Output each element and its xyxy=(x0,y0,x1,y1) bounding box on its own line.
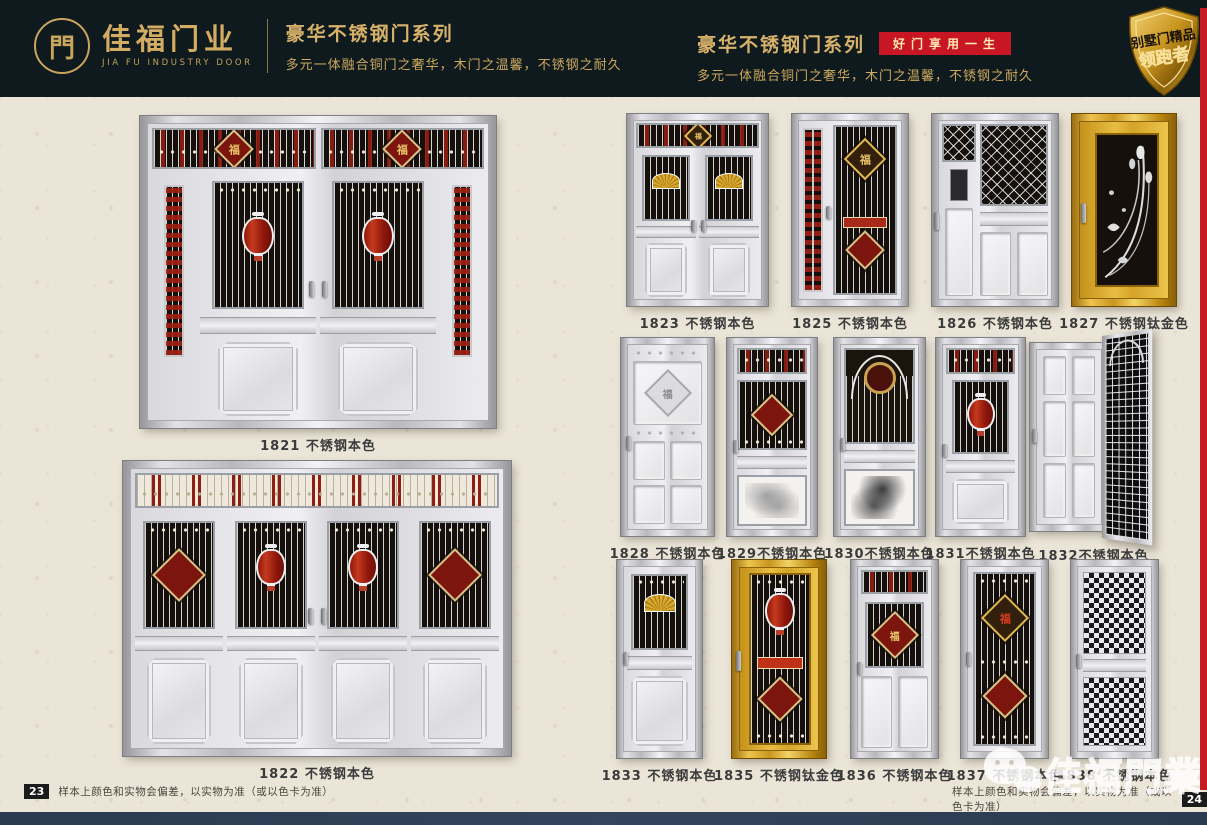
lattice-pattern xyxy=(1083,677,1146,746)
red-band xyxy=(757,657,803,669)
door-leaf xyxy=(411,513,499,744)
recessed-panel xyxy=(1072,463,1095,518)
door-leaf xyxy=(636,151,696,297)
door-1835-image xyxy=(732,560,826,758)
door-1825-image: 福 xyxy=(792,114,908,306)
transom-grille: 福 xyxy=(321,128,485,169)
door-handle xyxy=(626,436,631,450)
recessed-panel xyxy=(670,441,702,480)
leaf-grille-window: 福 xyxy=(833,125,897,295)
sidelite xyxy=(152,173,196,416)
leaf-grille-window xyxy=(212,181,304,309)
transom-grille xyxy=(946,348,1015,374)
door-label: 1825 不锈钢本色 xyxy=(792,313,908,332)
fu-glyph: 福 xyxy=(890,628,900,643)
door-handle xyxy=(321,608,326,624)
door-handle xyxy=(1081,203,1086,223)
ornament-dots xyxy=(423,527,487,533)
door-label: 1823 不锈钢本色 xyxy=(640,313,756,332)
door-leaves xyxy=(636,151,759,297)
door-card-1825: 福 1825 不锈钢本色 xyxy=(792,114,908,332)
emboss-diamond: 福 xyxy=(643,369,691,417)
header: 門 佳福门业 JIA FU INDUSTRY DOOR 豪华不锈钢门系列 多元一… xyxy=(0,0,1207,97)
leaf-grille-window xyxy=(631,574,688,650)
page-number: 23 xyxy=(24,784,49,799)
brand-logo-icon: 門 xyxy=(34,18,90,74)
door-body xyxy=(1077,566,1152,752)
emboss-panel xyxy=(708,243,750,297)
sidelite-grille xyxy=(812,128,823,292)
door-body xyxy=(942,344,1019,530)
mid-rail xyxy=(737,456,807,469)
door-body: 福 xyxy=(627,344,708,530)
leaf-grille-window: 福 xyxy=(865,602,924,668)
door-handle xyxy=(840,438,845,451)
ornament-dots xyxy=(977,659,1032,665)
door-handle xyxy=(733,440,738,453)
mid-rail xyxy=(320,317,436,334)
leaf-grille-window xyxy=(737,380,807,450)
door-handle xyxy=(691,220,696,232)
door-1830-image xyxy=(834,338,925,536)
door-leaf xyxy=(227,513,315,744)
emboss-panel xyxy=(952,479,1009,524)
mid-rail xyxy=(1083,659,1146,672)
door-leaves xyxy=(152,173,484,416)
door-leaf xyxy=(135,513,223,744)
recessed-panel xyxy=(633,441,665,480)
mid-rail xyxy=(980,212,1048,226)
series-subtitle-left: 多元一体融合铜门之奢华，木门之温馨，不锈钢之耐久 xyxy=(286,54,622,73)
door-label: 1826 不锈钢本色 xyxy=(937,313,1053,332)
lower-panels xyxy=(980,232,1048,296)
door-handle xyxy=(934,212,939,230)
emboss-panel xyxy=(239,658,303,744)
door-1821-body: 福 福 xyxy=(147,123,489,421)
recessed-panel: 福 xyxy=(633,361,702,425)
leaf-grille-window xyxy=(235,521,307,629)
lantern-icon xyxy=(256,549,286,585)
red-edge-strip xyxy=(1200,8,1207,790)
door-1833-image xyxy=(617,560,702,758)
ornament-dots xyxy=(753,579,807,585)
ornament-dots xyxy=(753,733,807,739)
door-body: 福 xyxy=(857,566,932,752)
recessed-panel xyxy=(1043,356,1066,395)
door-handle xyxy=(857,662,862,675)
gold-fan-icon xyxy=(652,173,680,189)
gold-fan-icon xyxy=(644,594,676,612)
leaf-grille-window xyxy=(332,181,424,309)
mid-rail xyxy=(411,636,499,651)
door-card-1830: 1830不锈钢本色 xyxy=(834,338,925,562)
door-body xyxy=(1036,349,1102,525)
emboss-panel xyxy=(423,658,487,744)
leaf-grille-window xyxy=(143,521,215,629)
door-1829-image xyxy=(727,338,817,536)
recessed-panel xyxy=(980,232,1011,296)
ornament-dots xyxy=(635,579,684,585)
gold-fan-icon xyxy=(715,173,743,189)
door-body xyxy=(623,566,696,752)
leaf-grille-window xyxy=(952,380,1009,454)
emboss-panel xyxy=(147,658,211,744)
sidelite xyxy=(440,173,484,416)
main-leaf xyxy=(980,124,1048,296)
door-body xyxy=(739,567,819,751)
narrow-leaf xyxy=(942,124,976,296)
door-card-1823: 福 xyxy=(627,114,768,332)
brand-name-cn: 佳福门业 xyxy=(102,24,253,54)
recessed-panel xyxy=(861,676,892,748)
door-handle xyxy=(966,652,971,666)
fu-glyph: 福 xyxy=(999,610,1010,626)
emboss-panel xyxy=(631,676,688,746)
wechat-icon xyxy=(982,744,1044,802)
etched-panel xyxy=(737,475,807,526)
main-leaf: 福 xyxy=(828,120,902,300)
fu-glyph: 福 xyxy=(860,151,871,167)
mid-rail xyxy=(227,636,315,651)
medallion-icon xyxy=(864,362,896,394)
door-1832-image xyxy=(1030,336,1157,538)
door-card-1821: 福 福 xyxy=(140,116,496,454)
mid-rail xyxy=(636,226,696,238)
door-1828-image: 福 xyxy=(621,338,714,536)
ornament-dots xyxy=(139,491,495,497)
door-leaf xyxy=(699,151,759,297)
intercom-panel xyxy=(950,169,968,201)
lantern-icon xyxy=(362,217,394,255)
door-body: 福 xyxy=(633,120,762,300)
emblem-shield-icon: 别墅门精品 领跑者 xyxy=(1124,5,1204,97)
door-card-1828: 福 1828 不锈钢本色 xyxy=(621,338,714,562)
lantern-icon xyxy=(242,217,274,255)
ornament-dots xyxy=(147,527,211,533)
series-title-left: 豪华不锈钢门系列 xyxy=(286,19,622,46)
door-1823-image: 福 xyxy=(627,114,768,306)
recessed-panel xyxy=(1043,463,1066,518)
door-body xyxy=(733,344,811,530)
leaf-grille-window xyxy=(327,521,399,629)
lotus-art xyxy=(851,476,908,519)
lantern-icon xyxy=(967,398,995,430)
lattice-grille xyxy=(980,124,1048,206)
mesh-grille xyxy=(1106,333,1148,540)
door-body: 福 xyxy=(967,566,1042,752)
door-card-1826: 1826 不锈钢本色 xyxy=(932,114,1058,332)
transom-grille xyxy=(861,570,928,594)
ornament-dots xyxy=(950,357,1011,363)
open-screen-leaf xyxy=(1102,329,1152,546)
door-1831-image xyxy=(936,338,1025,536)
firecracker-bars xyxy=(454,187,470,355)
peacock-window xyxy=(1095,133,1159,287)
door-handle xyxy=(1032,429,1037,443)
door-label: 1821 不锈钢本色 xyxy=(260,435,376,454)
door-handle xyxy=(736,651,741,671)
fu-glyph: 福 xyxy=(694,131,701,141)
full-grille-window xyxy=(749,573,811,745)
door-body xyxy=(1079,121,1169,299)
firecracker-bars xyxy=(805,130,812,290)
door-body xyxy=(938,120,1052,300)
ornament-dots xyxy=(741,439,803,445)
lantern-icon xyxy=(765,593,795,629)
watermark-text: 佳福門業 xyxy=(1042,746,1206,801)
door-handle xyxy=(308,608,313,624)
catalog-spread: 門 佳福门业 JIA FU INDUSTRY DOOR 豪华不锈钢门系列 多元一… xyxy=(0,0,1207,825)
transom-grille: 福 xyxy=(636,123,759,148)
brand-text: 佳福门业 JIA FU INDUSTRY DOOR xyxy=(102,24,253,67)
slogan-badge: 好门享用一生 xyxy=(879,32,1011,55)
door-1822-image xyxy=(123,461,511,756)
door-handle xyxy=(826,206,831,219)
peacock-art xyxy=(1097,135,1157,285)
recessed-panel xyxy=(1072,356,1095,395)
ornament-dots xyxy=(741,357,803,363)
etched-art xyxy=(745,483,799,518)
brand-name-en: JIA FU INDUSTRY DOOR xyxy=(102,58,253,68)
lower-panels xyxy=(861,676,928,748)
firecracker-bars xyxy=(814,130,821,290)
ornament-dots xyxy=(331,527,395,533)
transom xyxy=(135,473,499,508)
door-handle xyxy=(623,652,628,665)
narrow-leaf xyxy=(798,120,828,300)
header-brand-block: 門 佳福门业 JIA FU INDUSTRY DOOR 豪华不锈钢门系列 多元一… xyxy=(34,18,622,74)
door-card-1822: 1822 不锈钢本色 xyxy=(123,461,511,782)
door-card-1836: 福 1836 不锈钢本色 xyxy=(851,560,938,784)
door-label: 1822 不锈钢本色 xyxy=(259,763,375,782)
door-leaf xyxy=(200,173,316,416)
color-disclaimer: 样本上颜色和实物会偏差，以实物为准（或以色卡为准） xyxy=(58,784,333,799)
recessed-panel xyxy=(1017,232,1048,296)
ornament-dots xyxy=(336,187,420,193)
fu-glyph: 福 xyxy=(397,141,408,157)
fu-glyph: 福 xyxy=(228,141,239,157)
arch-ornament xyxy=(1109,337,1144,366)
firecracker-bars xyxy=(166,187,182,355)
mid-rail xyxy=(200,317,316,334)
series-title-right: 豪华不锈钢门系列 xyxy=(697,30,865,57)
series-left-block: 豪华不锈钢门系列 多元一体融合铜门之奢华，木门之温馨，不锈钢之耐久 xyxy=(286,19,622,73)
recessed-panel xyxy=(1072,401,1095,456)
recessed-panel xyxy=(898,676,929,748)
door-card-1827: 1827 不锈钢钛金色 xyxy=(1072,114,1176,332)
door-card-1831: 1831不锈钢本色 xyxy=(936,338,1025,562)
emboss-panel xyxy=(218,342,298,416)
watermark: 佳福門業 xyxy=(982,738,1202,808)
door-leaf xyxy=(319,513,407,744)
door-card-1832: 1832不锈钢本色 xyxy=(1030,336,1157,564)
mid-rail xyxy=(699,226,759,238)
arch-grille-window xyxy=(844,348,915,444)
emboss-panel xyxy=(338,342,418,416)
door-label: 1827 不锈钢钛金色 xyxy=(1059,313,1189,332)
chat-bubble-small xyxy=(1014,766,1042,792)
series-right-block: 豪华不锈钢门系列 好门享用一生 多元一体融合铜门之奢华，木门之温馨，不锈钢之耐久 xyxy=(697,30,1033,84)
door-1826-image xyxy=(932,114,1058,306)
door-card-1835: 1835 不锈钢钛金色 xyxy=(732,560,826,784)
recessed-panel xyxy=(670,485,702,524)
sidelite-grille xyxy=(164,185,184,357)
mid-rail xyxy=(844,450,915,463)
door-label: 1833 不锈钢本色 xyxy=(602,765,718,784)
bottom-bar xyxy=(0,812,1207,825)
lantern-icon xyxy=(348,549,378,585)
header-divider xyxy=(267,19,268,73)
left-page-footer: 23 样本上颜色和实物会偏差，以实物为准（或以色卡为准） xyxy=(24,784,333,799)
door-label: 1835 不锈钢钛金色 xyxy=(714,765,844,784)
full-grille-window: 福 xyxy=(973,572,1036,746)
ornament-dots xyxy=(239,527,303,533)
door-handle xyxy=(309,281,314,297)
door-body: 福 xyxy=(798,120,902,300)
door-handle xyxy=(701,220,706,232)
door-1836-image: 福 xyxy=(851,560,938,758)
transom: 福 福 xyxy=(152,128,484,169)
fu-glyph: 福 xyxy=(663,386,673,401)
leaf-grille-window xyxy=(642,155,690,221)
door-handle xyxy=(942,444,947,457)
mid-rail xyxy=(319,636,407,651)
transom-grille xyxy=(737,348,807,374)
ornament-dots xyxy=(977,578,1032,584)
ornament-dots xyxy=(216,187,300,193)
leaf-grille-window xyxy=(705,155,753,221)
red-band xyxy=(843,217,887,228)
door-handle xyxy=(1076,654,1081,668)
ornament-row xyxy=(633,350,702,356)
door-1827-image xyxy=(1072,114,1176,306)
door-1838-image xyxy=(1071,560,1158,758)
red-bars xyxy=(863,572,926,592)
ornament-row xyxy=(633,430,702,436)
door-1822-body xyxy=(130,468,504,749)
mid-rail xyxy=(946,460,1015,473)
mid-rail xyxy=(627,656,692,670)
door-card-1833: 1833 不锈钢本色 xyxy=(617,560,702,784)
emboss-panel xyxy=(331,658,395,744)
door-1821-image: 福 福 xyxy=(140,116,496,428)
mid-rail xyxy=(135,636,223,651)
door-handle xyxy=(322,281,327,297)
panel-door xyxy=(1030,343,1108,531)
sidelite-grille xyxy=(452,185,472,357)
leaf-grille-window xyxy=(419,521,491,629)
transom-grille: 福 xyxy=(152,128,316,169)
door-card-1829: 1829不锈钢本色 xyxy=(727,338,817,562)
door-leaf xyxy=(320,173,436,416)
lattice-pattern xyxy=(1083,572,1146,654)
etched-panel xyxy=(844,469,915,526)
recessed-panel xyxy=(633,485,665,524)
door-1837-image: 福 xyxy=(961,560,1048,758)
door-label: 1836 不锈钢本色 xyxy=(837,765,953,784)
recessed-panel xyxy=(945,208,973,296)
door-leaves xyxy=(135,513,499,744)
lower-panels xyxy=(633,441,702,524)
door-body xyxy=(840,344,919,530)
emboss-panel xyxy=(645,243,687,297)
lattice-grille xyxy=(942,124,976,162)
grille-bars xyxy=(633,576,686,648)
logo-glyph: 門 xyxy=(49,28,75,65)
series-subtitle-right: 多元一体融合铜门之奢华，木门之温馨，不锈钢之耐久 xyxy=(697,65,1033,84)
recessed-panel xyxy=(1043,401,1066,456)
